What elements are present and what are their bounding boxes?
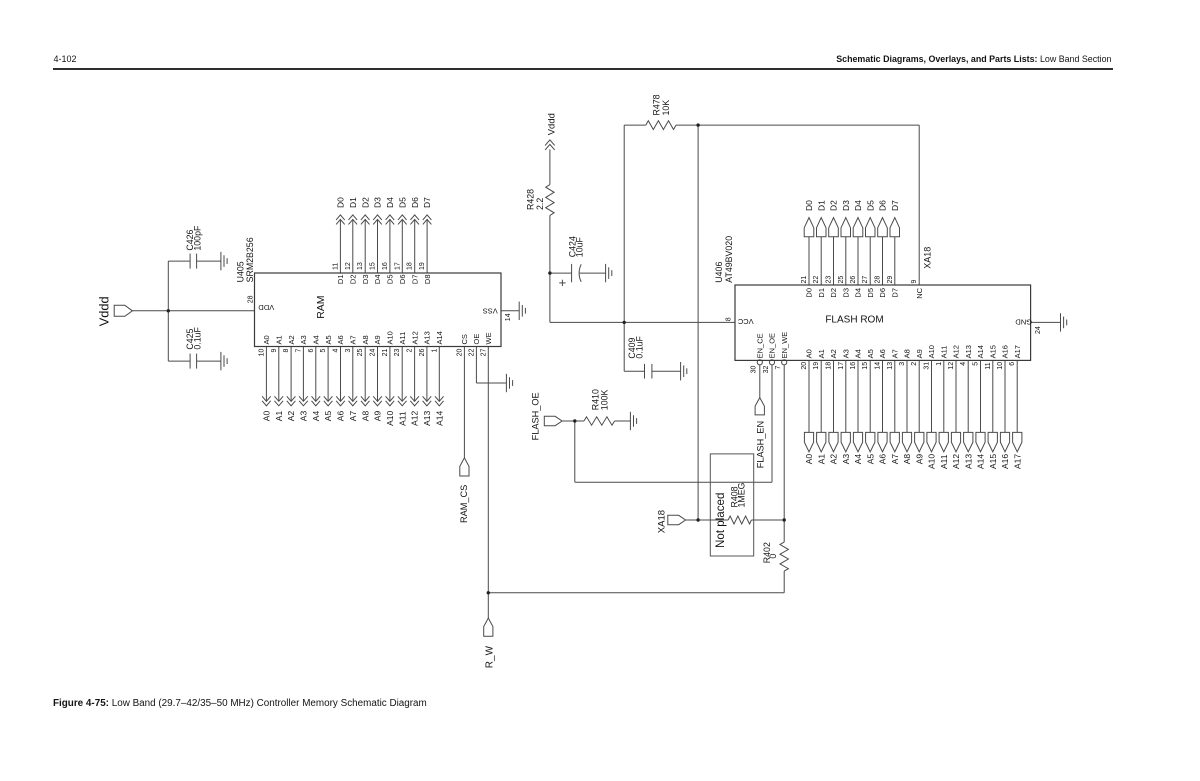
- svg-text:D2: D2: [829, 288, 838, 298]
- svg-text:D4: D4: [373, 275, 382, 285]
- svg-text:10uF: 10uF: [575, 237, 585, 258]
- svg-text:A12: A12: [951, 454, 961, 469]
- svg-text:A13: A13: [422, 411, 432, 426]
- svg-text:A2: A2: [287, 335, 296, 344]
- svg-text:D3: D3: [373, 197, 383, 208]
- svg-text:A2: A2: [829, 349, 838, 358]
- svg-text:A1: A1: [274, 335, 283, 344]
- svg-text:FLASH ROM: FLASH ROM: [825, 314, 883, 325]
- svg-text:A10: A10: [927, 454, 937, 469]
- svg-text:32: 32: [763, 366, 770, 374]
- svg-text:24: 24: [370, 349, 377, 357]
- svg-text:A11: A11: [939, 454, 949, 469]
- svg-text:A13: A13: [964, 345, 973, 358]
- svg-text:U406: U406: [714, 262, 724, 283]
- svg-text:D6: D6: [878, 200, 888, 211]
- svg-text:4-102: 4-102: [54, 54, 77, 64]
- svg-text:26: 26: [850, 276, 857, 284]
- svg-text:100K: 100K: [600, 390, 610, 411]
- svg-text:27: 27: [480, 349, 487, 357]
- svg-text:18: 18: [826, 362, 833, 370]
- svg-text:A11: A11: [940, 346, 949, 359]
- svg-text:GND: GND: [1015, 318, 1032, 327]
- svg-text:A6: A6: [336, 411, 346, 422]
- svg-text:12: 12: [345, 262, 352, 270]
- svg-text:12: 12: [948, 362, 955, 370]
- svg-text:A1: A1: [274, 411, 284, 422]
- svg-text:A0: A0: [262, 411, 272, 422]
- svg-text:30: 30: [751, 366, 758, 374]
- svg-text:Vddd: Vddd: [97, 296, 112, 326]
- svg-text:FLASH_EN: FLASH_EN: [755, 421, 765, 469]
- svg-text:Not placed: Not placed: [714, 493, 727, 548]
- svg-text:21: 21: [382, 349, 389, 357]
- svg-text:A3: A3: [842, 349, 851, 358]
- svg-text:A12: A12: [410, 411, 420, 426]
- svg-text:A8: A8: [903, 349, 912, 358]
- svg-text:Figure 4-75: Low Band (29.7–42: Figure 4-75: Low Band (29.7–42/35–50 MHz…: [53, 698, 427, 709]
- svg-text:20: 20: [456, 349, 463, 357]
- svg-text:A12: A12: [410, 331, 419, 344]
- svg-text:4: 4: [333, 349, 340, 353]
- svg-text:D3: D3: [361, 275, 370, 285]
- svg-text:9: 9: [911, 280, 918, 284]
- svg-text:A5: A5: [866, 349, 875, 358]
- svg-text:A6: A6: [336, 335, 345, 344]
- svg-text:11: 11: [985, 362, 992, 369]
- svg-text:A17: A17: [1012, 454, 1022, 469]
- svg-text:A7: A7: [891, 349, 900, 358]
- svg-text:14: 14: [875, 362, 882, 370]
- svg-text:10: 10: [997, 362, 1004, 370]
- svg-text:A8: A8: [360, 411, 370, 422]
- svg-text:A3: A3: [299, 335, 308, 344]
- svg-text:WE: WE: [484, 332, 493, 344]
- svg-text:VSS: VSS: [483, 306, 498, 315]
- svg-text:D7: D7: [410, 275, 419, 285]
- svg-text:OE: OE: [472, 334, 481, 345]
- svg-text:D1: D1: [816, 200, 826, 211]
- svg-text:13: 13: [357, 262, 364, 270]
- svg-text:A9: A9: [915, 349, 924, 358]
- svg-text:2.2: 2.2: [535, 198, 545, 210]
- svg-text:6: 6: [1009, 362, 1016, 366]
- svg-text:D4: D4: [854, 288, 863, 298]
- svg-text:EN_CE: EN_CE: [756, 333, 765, 358]
- svg-text:D7: D7: [890, 200, 900, 211]
- svg-text:A14: A14: [976, 345, 985, 358]
- svg-text:D5: D5: [386, 275, 395, 285]
- svg-text:100pF: 100pF: [193, 225, 203, 251]
- svg-text:A15: A15: [989, 345, 998, 358]
- svg-text:19: 19: [419, 262, 426, 270]
- svg-text:28: 28: [875, 276, 882, 284]
- svg-text:4: 4: [960, 362, 967, 366]
- svg-text:A4: A4: [311, 411, 321, 422]
- svg-text:24: 24: [1035, 326, 1042, 334]
- svg-text:D1: D1: [817, 288, 826, 298]
- svg-text:A13: A13: [423, 331, 432, 344]
- svg-text:A14: A14: [976, 454, 986, 469]
- svg-text:26: 26: [419, 349, 426, 357]
- svg-text:R402: R402: [762, 542, 772, 563]
- svg-text:D6: D6: [410, 197, 420, 208]
- svg-text:28: 28: [247, 295, 254, 303]
- svg-text:D4: D4: [385, 197, 395, 208]
- svg-text:23: 23: [826, 276, 833, 284]
- svg-text:21: 21: [801, 276, 808, 284]
- svg-text:FLASH_OE: FLASH_OE: [531, 392, 541, 440]
- svg-text:Schematic Diagrams, Overlays,: Schematic Diagrams, Overlays, and Parts …: [836, 54, 1111, 64]
- svg-text:10K: 10K: [661, 100, 671, 116]
- svg-text:5: 5: [973, 362, 980, 366]
- svg-text:A9: A9: [373, 411, 383, 422]
- svg-text:EN_WE: EN_WE: [780, 332, 789, 359]
- svg-text:VCC: VCC: [737, 317, 753, 326]
- svg-text:A16: A16: [1001, 345, 1010, 358]
- svg-text:5: 5: [320, 349, 327, 353]
- svg-text:A4: A4: [853, 454, 863, 465]
- svg-text:7: 7: [295, 349, 302, 353]
- svg-text:D6: D6: [398, 275, 407, 285]
- svg-text:19: 19: [813, 362, 820, 370]
- svg-text:A7: A7: [890, 454, 900, 465]
- svg-text:A0: A0: [804, 454, 814, 465]
- svg-text:XA18: XA18: [923, 247, 933, 269]
- svg-text:20: 20: [801, 362, 808, 370]
- svg-text:A4: A4: [312, 335, 321, 344]
- svg-text:RAM_CS: RAM_CS: [459, 485, 469, 523]
- svg-text:D2: D2: [360, 197, 370, 208]
- svg-text:1: 1: [936, 362, 943, 366]
- svg-text:D0: D0: [336, 197, 346, 208]
- svg-text:0.1uF: 0.1uF: [193, 326, 203, 349]
- svg-text:A1: A1: [816, 454, 826, 465]
- svg-text:25: 25: [838, 276, 845, 284]
- svg-text:A3: A3: [841, 454, 851, 465]
- svg-text:A16: A16: [1000, 454, 1010, 469]
- svg-text:D1: D1: [336, 275, 345, 285]
- svg-text:1MEG: 1MEG: [737, 482, 747, 507]
- svg-text:A1: A1: [817, 349, 826, 358]
- svg-text:22: 22: [813, 276, 820, 284]
- svg-text:2: 2: [407, 349, 414, 353]
- svg-text:A7: A7: [348, 411, 358, 422]
- svg-text:A12: A12: [952, 345, 961, 358]
- svg-text:A5: A5: [324, 335, 333, 344]
- svg-text:A0: A0: [262, 335, 271, 344]
- svg-text:A10: A10: [385, 411, 395, 426]
- svg-text:D6: D6: [878, 288, 887, 298]
- svg-text:A11: A11: [397, 411, 407, 426]
- svg-text:31: 31: [924, 362, 931, 370]
- svg-text:A10: A10: [386, 331, 395, 344]
- svg-text:CS: CS: [460, 334, 469, 344]
- svg-text:14: 14: [505, 313, 512, 321]
- svg-text:VDD: VDD: [258, 303, 274, 312]
- svg-text:16: 16: [850, 362, 857, 370]
- svg-text:A6: A6: [878, 349, 887, 358]
- svg-text:D7: D7: [891, 288, 900, 298]
- svg-text:D2: D2: [829, 200, 839, 211]
- svg-text:D8: D8: [423, 275, 432, 285]
- svg-text:11: 11: [332, 263, 339, 270]
- svg-text:A9: A9: [373, 335, 382, 344]
- svg-text:8: 8: [283, 349, 290, 353]
- svg-text:15: 15: [370, 262, 377, 270]
- svg-text:29: 29: [887, 276, 894, 284]
- svg-text:16: 16: [382, 262, 389, 270]
- svg-text:A8: A8: [902, 454, 912, 465]
- svg-text:D4: D4: [853, 200, 863, 211]
- svg-text:17: 17: [838, 362, 845, 370]
- svg-text:6: 6: [308, 349, 315, 353]
- svg-text:A8: A8: [361, 335, 370, 344]
- svg-text:0: 0: [768, 554, 778, 559]
- svg-text:R478: R478: [651, 94, 661, 115]
- svg-text:A14: A14: [435, 331, 444, 344]
- svg-text:17: 17: [394, 262, 401, 270]
- svg-text:25: 25: [357, 349, 364, 357]
- svg-text:A10: A10: [927, 345, 936, 358]
- svg-text:A4: A4: [854, 349, 863, 358]
- svg-text:D3: D3: [841, 200, 851, 211]
- svg-text:A13: A13: [963, 454, 973, 469]
- svg-text:18: 18: [407, 262, 414, 270]
- svg-text:23: 23: [394, 349, 401, 357]
- svg-text:27: 27: [862, 276, 869, 284]
- svg-text:Vddd: Vddd: [546, 113, 557, 135]
- svg-text:D2: D2: [349, 275, 358, 285]
- svg-text:A17: A17: [1013, 345, 1022, 358]
- svg-text:A6: A6: [878, 454, 888, 465]
- svg-text:AT49BV020: AT49BV020: [724, 236, 734, 283]
- svg-text:15: 15: [862, 362, 869, 370]
- svg-text:22: 22: [468, 349, 475, 357]
- svg-text:A2: A2: [829, 454, 839, 465]
- svg-text:D1: D1: [348, 197, 358, 208]
- svg-text:3: 3: [899, 362, 906, 366]
- svg-text:A9: A9: [914, 454, 924, 465]
- svg-text:A2: A2: [286, 411, 296, 422]
- svg-text:NC: NC: [915, 287, 924, 298]
- svg-text:10: 10: [258, 349, 265, 357]
- svg-text:D0: D0: [805, 288, 814, 298]
- svg-text:RAM: RAM: [315, 295, 327, 318]
- svg-text:2: 2: [911, 362, 918, 366]
- svg-text:A14: A14: [434, 411, 444, 426]
- svg-text:R428: R428: [525, 189, 535, 210]
- svg-text:R_W: R_W: [484, 645, 495, 668]
- svg-text:D3: D3: [842, 288, 851, 298]
- svg-text:A3: A3: [299, 411, 309, 422]
- svg-text:U405: U405: [235, 261, 245, 282]
- svg-text:SRM2B256: SRM2B256: [245, 237, 255, 282]
- svg-text:D5: D5: [397, 197, 407, 208]
- svg-text:D5: D5: [866, 288, 875, 298]
- svg-text:D7: D7: [422, 197, 432, 208]
- svg-text:7: 7: [775, 366, 782, 370]
- svg-text:A0: A0: [805, 349, 814, 358]
- svg-text:A15: A15: [988, 454, 998, 469]
- svg-text:3: 3: [345, 349, 352, 353]
- svg-text:A7: A7: [349, 335, 358, 344]
- svg-text:A5: A5: [323, 411, 333, 422]
- svg-text:D0: D0: [804, 200, 814, 211]
- svg-text:9: 9: [271, 349, 278, 353]
- svg-text:D5: D5: [865, 200, 875, 211]
- svg-text:A5: A5: [865, 454, 875, 465]
- svg-text:13: 13: [887, 362, 894, 370]
- svg-text:XA18: XA18: [656, 510, 667, 533]
- svg-text:1: 1: [431, 349, 438, 353]
- svg-text:0.1uF: 0.1uF: [634, 335, 644, 358]
- svg-text:EN_OE: EN_OE: [768, 333, 777, 358]
- svg-text:8: 8: [726, 317, 733, 321]
- svg-text:A11: A11: [398, 332, 407, 345]
